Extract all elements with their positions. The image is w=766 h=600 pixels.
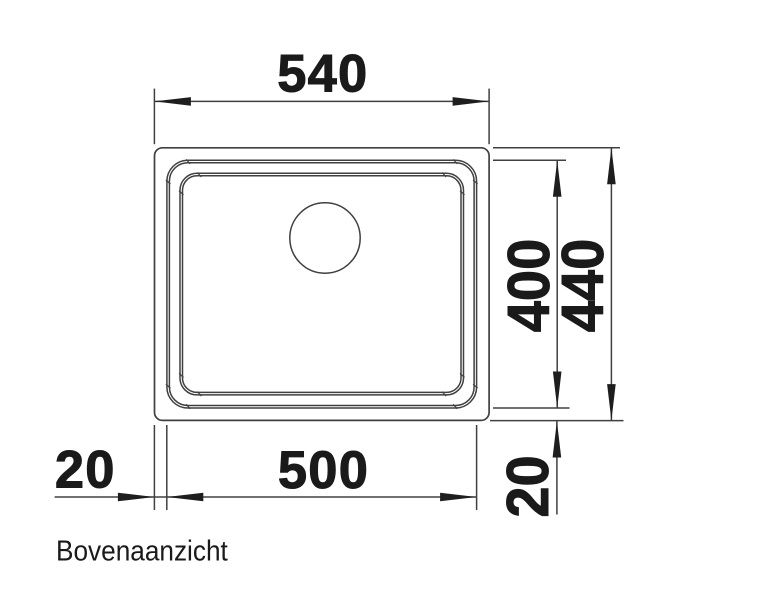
svg-text:20: 20 (55, 441, 116, 500)
svg-text:Bovenaanzicht: Bovenaanzicht (56, 534, 228, 566)
svg-text:500: 500 (278, 441, 369, 500)
svg-text:20: 20 (496, 455, 562, 517)
svg-text:540: 540 (277, 45, 368, 104)
svg-text:440: 440 (551, 239, 617, 333)
